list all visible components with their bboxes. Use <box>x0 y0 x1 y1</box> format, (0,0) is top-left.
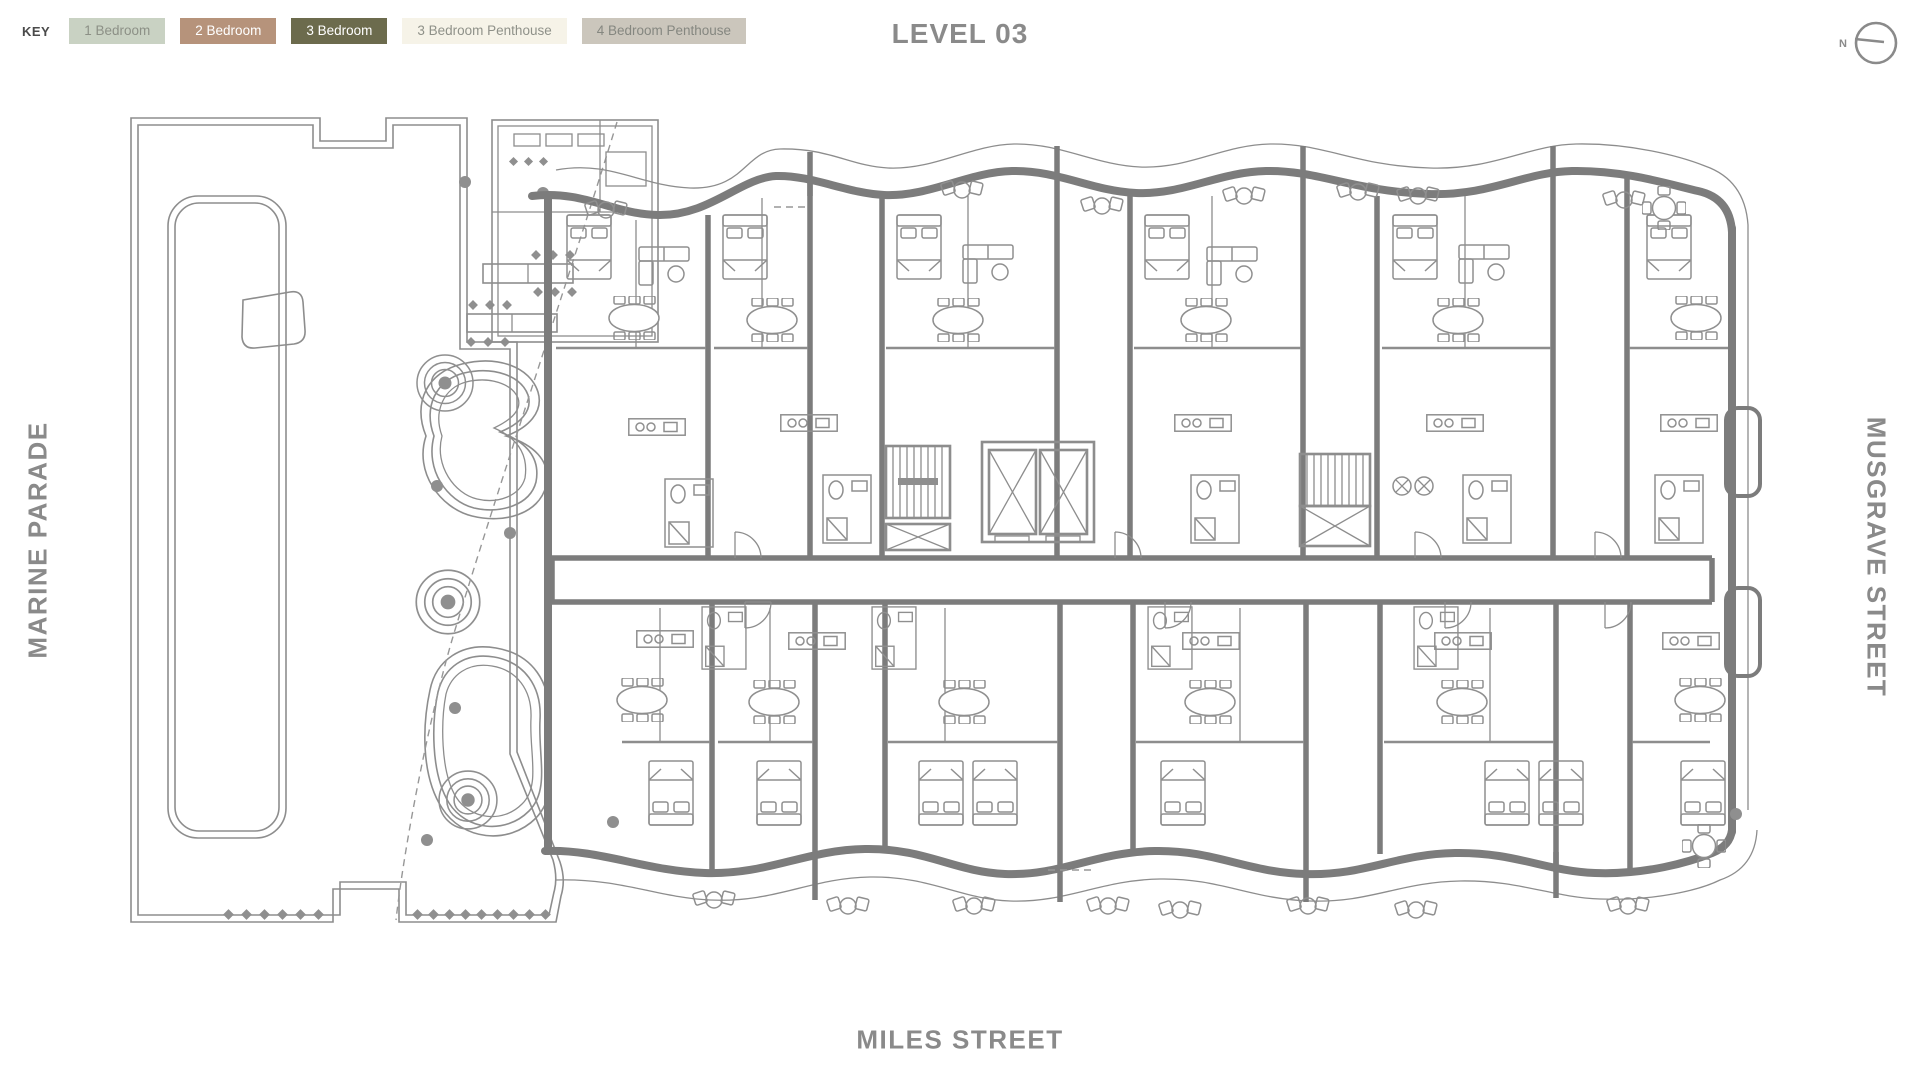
dining-table-icon <box>1671 296 1721 340</box>
sofa-icon <box>1207 247 1257 285</box>
dining-table-icon <box>939 680 989 724</box>
bathroom-icon <box>1148 607 1192 669</box>
floor-plan-drawing <box>0 0 1920 1080</box>
kitchen-island-icon <box>1661 415 1717 431</box>
dining-table-icon <box>1181 298 1231 342</box>
dining-table-icon <box>1433 298 1483 342</box>
tree-dots <box>421 176 619 846</box>
bed-icon <box>1161 761 1205 825</box>
bed-icon <box>973 761 1017 825</box>
stair-core-east <box>1300 454 1433 546</box>
bed-icon <box>1485 761 1529 825</box>
bed-icon <box>649 761 693 825</box>
dining-table-icon <box>933 298 983 342</box>
party-walls-south <box>712 602 1630 874</box>
stair-core-west <box>886 446 950 550</box>
furniture-north-units <box>567 215 1721 547</box>
bathroom-icon <box>872 607 916 669</box>
kitchen-island-icon <box>1427 415 1483 431</box>
bed-icon <box>1145 215 1189 279</box>
bed-icon <box>757 761 801 825</box>
sofa-icon <box>963 245 1013 283</box>
sofa-icon <box>1459 245 1509 283</box>
balcony-furniture-north <box>584 180 1686 230</box>
bed-icon <box>919 761 963 825</box>
outdoor-table-icon <box>1642 186 1686 230</box>
building <box>532 144 1760 918</box>
dining-table-icon <box>749 680 799 724</box>
dining-table-icon <box>1185 680 1235 724</box>
sofa-icon <box>639 247 689 285</box>
kitchen-island-icon <box>1663 633 1719 649</box>
bed-icon <box>1647 215 1691 279</box>
bed-icon <box>897 215 941 279</box>
bathroom-icon <box>1191 475 1239 543</box>
corridor <box>552 558 1712 602</box>
bathroom-icon <box>702 607 746 669</box>
dining-table-icon <box>1437 680 1487 724</box>
elevator-bank <box>982 442 1094 542</box>
party-walls-north <box>708 173 1627 558</box>
balcony-furniture-south <box>692 808 1742 918</box>
kitchen-island-icon <box>637 631 693 647</box>
dining-table-icon <box>1675 678 1725 722</box>
bathroom-icon <box>1414 607 1458 669</box>
door-swings <box>735 532 1631 628</box>
bathroom-icon <box>1655 475 1703 543</box>
bathroom-icon <box>823 475 871 543</box>
bed-icon <box>1539 761 1583 825</box>
dining-table-icon <box>747 298 797 342</box>
furniture-south-units <box>617 607 1725 825</box>
lap-pool <box>168 196 305 838</box>
spa-pool <box>242 292 305 348</box>
kitchen-island-icon <box>629 419 685 435</box>
facade-recess-dashed <box>774 207 1092 870</box>
bed-icon <box>1393 215 1437 279</box>
floor-plan-page: KEY 1 Bedroom2 Bedroom3 Bedroom3 Bedroom… <box>0 0 1920 1080</box>
bed-icon <box>723 215 767 279</box>
bathroom-icon <box>1463 475 1511 543</box>
bed-icon <box>1681 761 1725 825</box>
kitchen-island-icon <box>1435 633 1491 649</box>
kitchen-island-icon <box>1175 415 1231 431</box>
boundary-dashed-line <box>396 122 617 920</box>
